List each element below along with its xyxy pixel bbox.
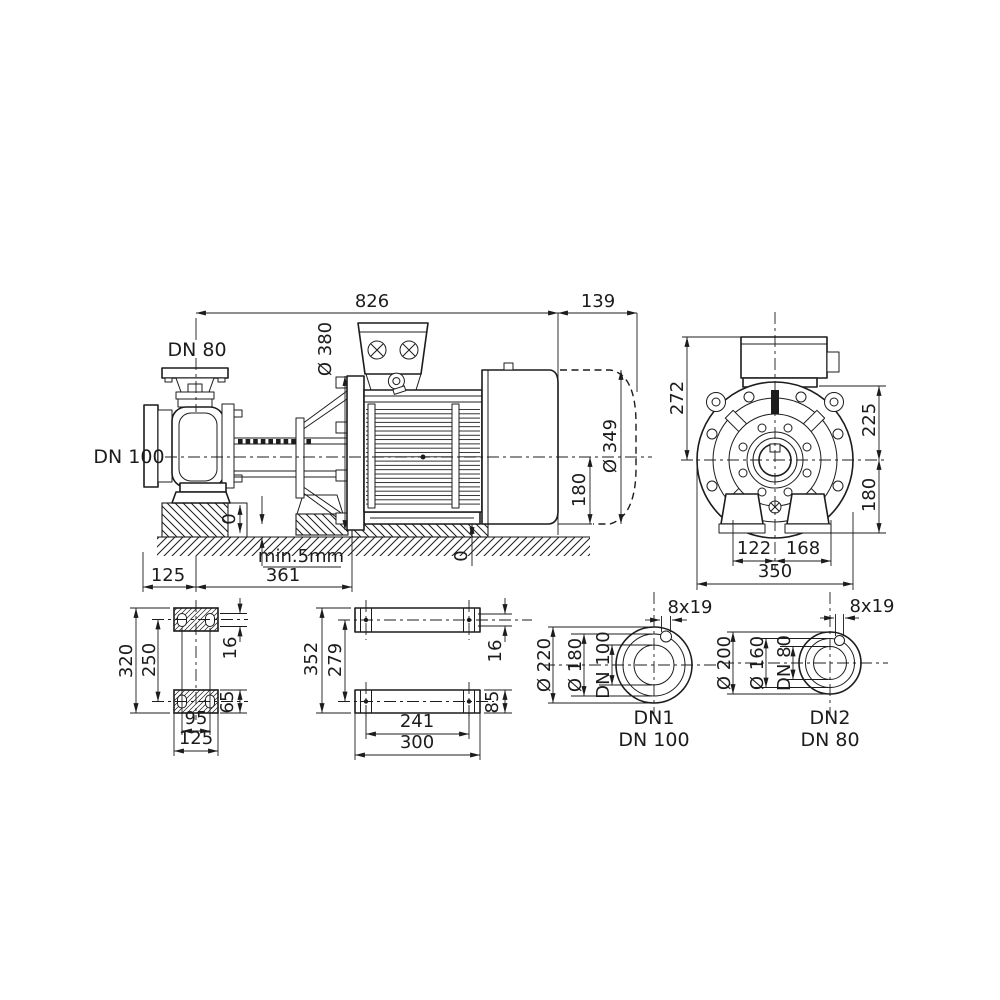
dn2-bolt-holes: 8x19 [849, 596, 894, 617]
mf-dim-length: 352 [301, 642, 322, 676]
mf-dim-hole-span: 241 [400, 711, 434, 732]
dim-zero-pump: 0 [219, 513, 240, 524]
flange-dn2: 8x19 Ø 200 Ø 160 DN 80 DN2 DN 80 [714, 592, 895, 751]
pf-dim-width: 125 [179, 728, 213, 749]
bolt-hole [661, 631, 672, 642]
motor-foot-plan: 352 279 16 85 241 300 [301, 598, 532, 760]
pf-dim-slot: 16 [220, 637, 241, 660]
pf-dim-hole-span: 95 [185, 708, 208, 729]
lantern-bracket [234, 391, 347, 525]
pf-dim-length: 320 [116, 644, 137, 678]
screw-icon [368, 341, 386, 359]
dim-motor-dia: Ø 349 [600, 419, 621, 473]
mf-dim-hole-pitch: 279 [325, 643, 346, 677]
dn1-outer-dia: Ø 220 [534, 638, 555, 692]
dim-foot-left: 122 [737, 538, 771, 559]
note-min-gap: min.5mm [258, 546, 344, 567]
dim-overall-width: 350 [758, 561, 792, 582]
flange-dn1: 8x19 Ø 220 Ø 180 DN 100 DN1 DN 100 [534, 592, 716, 751]
suction-flange-label: DN 80 [167, 339, 226, 361]
pump-dimensional-drawing: 826 139 DN 80 DN 100 Ø 380 Ø 349 180 0 0… [0, 0, 1000, 1000]
dn2-bolt-circle: Ø 160 [747, 636, 768, 690]
pump-casing [144, 368, 242, 503]
dim-axis-to-base-side: 180 [569, 473, 590, 507]
dim-foot-right: 168 [786, 538, 820, 559]
screw-icon [400, 341, 418, 359]
bolt-hole [835, 636, 845, 646]
dn1-bore: DN 100 [593, 631, 614, 698]
dim-motor-flange-dia: Ø 380 [315, 322, 336, 376]
terminal-box-end [741, 337, 839, 387]
dn2-outer-dia: Ø 200 [714, 636, 735, 690]
dim-axis-to-base-end: 180 [859, 478, 880, 512]
dn1-bolt-holes: 8x19 [667, 597, 712, 618]
pf-dim-hole-pitch: 250 [139, 643, 160, 677]
dim-axis-to-flange: 361 [266, 565, 300, 586]
dn1-bolt-circle: Ø 180 [565, 638, 586, 692]
dn1-port-size: DN 100 [618, 729, 689, 751]
end-view: 272 225 180 122 168 350 [667, 312, 886, 590]
dn2-port-id: DN2 [810, 707, 851, 729]
dn2-port-size: DN 80 [800, 729, 859, 751]
motor [336, 323, 482, 530]
mf-dim-width: 300 [400, 732, 434, 753]
pf-dim-foot-width: 65 [217, 691, 238, 714]
drawing-canvas: 826 139 DN 80 DN 100 Ø 380 Ø 349 180 0 0… [0, 0, 1000, 1000]
discharge-flange-label: DN 100 [93, 446, 164, 468]
dim-box-height: 272 [667, 381, 688, 415]
dim-axis-to-face: 125 [151, 565, 185, 586]
dim-axis-to-top: 225 [859, 403, 880, 437]
mf-dim-foot-width: 85 [482, 691, 503, 714]
pump-foot-plan: 320 250 16 65 95 125 [116, 598, 248, 756]
side-view: 826 139 DN 80 DN 100 Ø 380 Ø 349 180 0 0… [93, 291, 652, 592]
dn2-bore: DN 80 [774, 635, 795, 691]
dim-total-length: 826 [355, 291, 389, 312]
dim-zero-motor: 0 [451, 550, 472, 561]
dn1-port-id: DN1 [634, 707, 675, 729]
mf-dim-slot: 16 [485, 640, 506, 663]
terminal-box [358, 323, 428, 374]
dim-fan-clearance: 139 [581, 291, 615, 312]
